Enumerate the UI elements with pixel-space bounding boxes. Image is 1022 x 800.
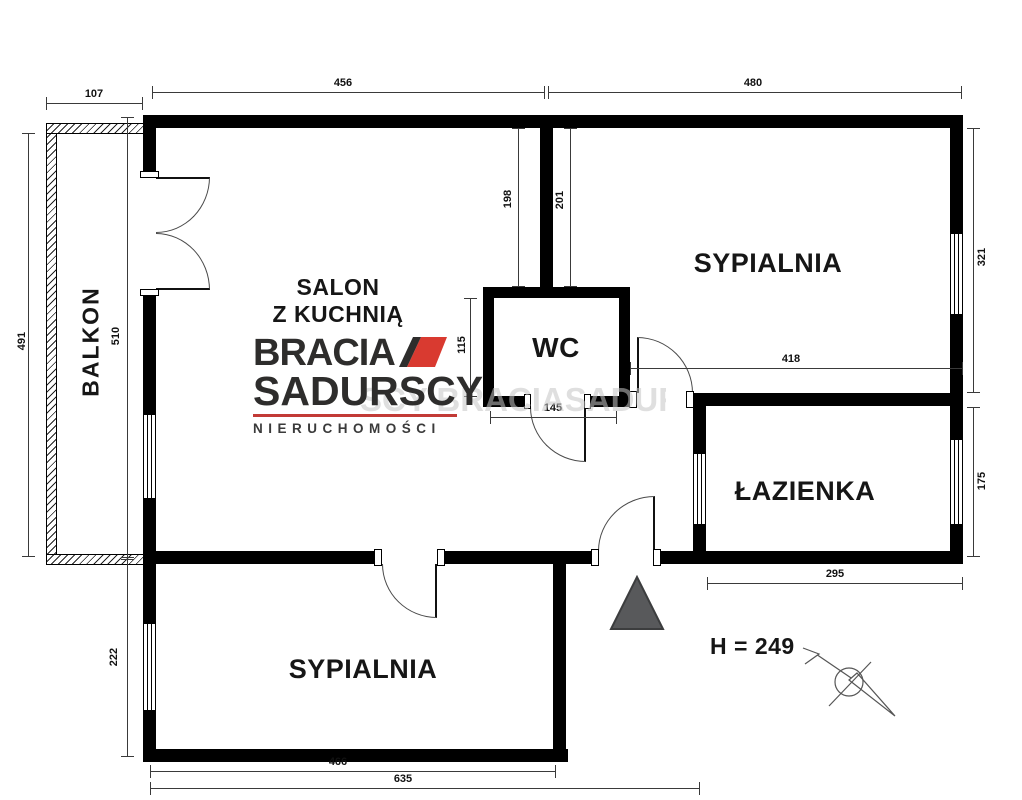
logo-rule — [253, 414, 457, 417]
dimension-line — [28, 133, 29, 557]
balcony-wall-hatched — [46, 123, 146, 134]
logo-brand-line2: SADURSCY — [253, 371, 465, 411]
dimension-label: 510 — [110, 314, 122, 358]
window-pane — [147, 624, 152, 710]
floor-plan: 107 456 480 145 418 295 466 635 491 510 … — [0, 0, 1022, 800]
wall — [440, 551, 597, 564]
door-jamb — [686, 391, 694, 408]
wall — [693, 526, 706, 564]
dimension-label: 175 — [976, 459, 988, 503]
logo-accent-shape — [397, 335, 449, 369]
dimension-label: 635 — [381, 773, 425, 785]
door-jamb — [374, 549, 382, 566]
wall — [143, 290, 156, 413]
room-label-bathroom: ŁAZIENKA — [695, 476, 915, 507]
room-label-salon: SALON — [228, 274, 448, 301]
wall — [143, 551, 380, 564]
door-jamb — [653, 549, 661, 566]
window — [143, 622, 156, 712]
wall — [693, 393, 706, 452]
wall — [540, 128, 553, 292]
dimension-label: 491 — [16, 319, 28, 363]
dimension-line — [973, 128, 974, 393]
door-jamb — [140, 171, 159, 178]
window-pane — [954, 234, 959, 314]
dimension-label: 107 — [72, 88, 116, 100]
wall — [950, 115, 963, 232]
dimension-line — [630, 368, 963, 369]
window — [143, 413, 156, 500]
wall — [950, 316, 963, 438]
window-pane — [147, 415, 152, 498]
entrance-door-arc — [598, 496, 655, 551]
room-label-balcony: BALKON — [78, 262, 105, 422]
dimension-line — [152, 92, 545, 93]
dimension-line — [150, 788, 700, 789]
room-label-bedroom-top: SYPIALNIA — [658, 248, 878, 279]
window — [950, 438, 963, 526]
window-pane — [954, 440, 959, 524]
ceiling-height-note: H = 249 — [710, 633, 795, 660]
agency-logo: BRACIA SADURSCY NIERUCHOMOŚCI — [253, 335, 465, 436]
entrance-marker — [608, 575, 666, 631]
room-label-bedroom-bottom: SYPIALNIA — [253, 654, 473, 685]
door-jamb — [437, 549, 445, 566]
balcony-wall-hatched — [46, 123, 57, 565]
window — [950, 232, 963, 316]
dimension-line — [707, 583, 963, 584]
dimension-label: 480 — [731, 77, 775, 89]
room-label-salon-line2: Z KUCHNIĄ — [228, 301, 448, 328]
dimension-line — [127, 117, 128, 560]
dimension-label: 198 — [502, 177, 514, 221]
wall — [143, 115, 963, 128]
dimension-label: 418 — [769, 353, 813, 365]
wall-wc — [483, 287, 630, 298]
door-jamb — [140, 289, 159, 296]
dimension-line — [548, 92, 962, 93]
dimension-line — [46, 103, 143, 104]
room-label-wc: WC — [446, 332, 666, 364]
wall — [143, 115, 156, 177]
north-arrow-icon — [795, 640, 910, 725]
dimension-label: 222 — [108, 635, 120, 679]
dimension-line — [973, 407, 974, 557]
bedroom-door-arc — [382, 564, 437, 618]
dimension-line — [127, 557, 128, 757]
dimension-label: 456 — [321, 77, 365, 89]
dimension-line — [150, 771, 556, 772]
balcony-door-arc — [156, 233, 210, 290]
dimension-label: 295 — [813, 568, 857, 580]
logo-tagline: NIERUCHOMOŚCI — [253, 421, 465, 436]
wall — [553, 551, 566, 762]
door-jamb — [591, 549, 599, 566]
dimension-line — [518, 128, 519, 287]
wall — [693, 393, 963, 406]
dimension-line — [570, 128, 571, 287]
dimension-label: 466 — [316, 756, 360, 768]
dimension-label: 321 — [976, 235, 988, 279]
logo-brand-line1: BRACIA — [253, 335, 395, 371]
balcony-door-arc — [156, 177, 210, 233]
wall — [143, 565, 156, 622]
dimension-label: 201 — [554, 178, 566, 222]
